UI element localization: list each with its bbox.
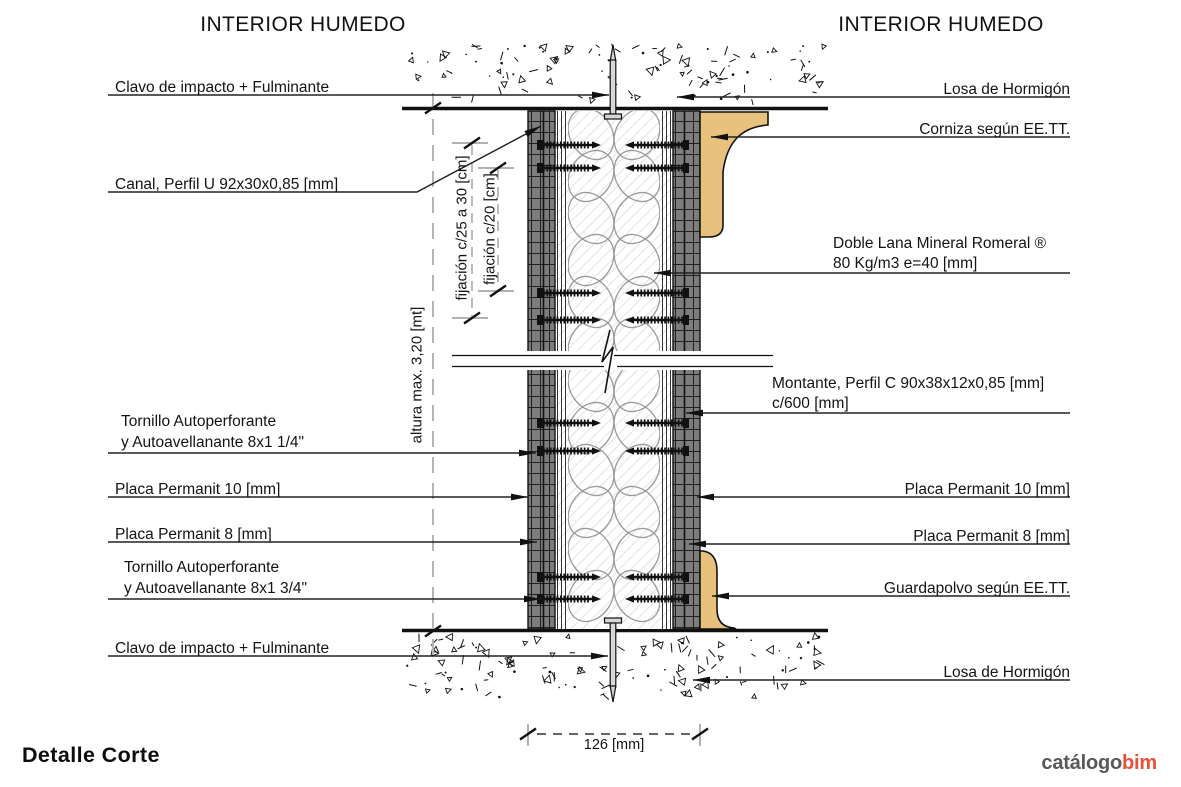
label-tornillo-2-line2: y Autoavellanante 8x1 3/4" [124, 578, 307, 599]
label-fijacion-outer: fijación c/25 a 30 [cm] [454, 155, 471, 300]
label-tornillo-1: Tornillo Autoperforante y Autoavellanant… [121, 411, 304, 453]
title-interior-left: INTERIOR HUMEDO [150, 13, 456, 37]
label-tornillo-1-line2: y Autoavellanante 8x1 1/4" [121, 432, 304, 453]
label-tornillo-2: Tornillo Autoperforante y Autoavellanant… [124, 557, 307, 599]
label-clavo-bottom: Clavo de impacto + Fulminante [115, 638, 329, 659]
detail-drawing-sheet: INTERIOR HUMEDO INTERIOR HUMEDO Clavo de… [0, 0, 1181, 787]
label-placa8-right: Placa Permanit 8 [mm] [913, 526, 1070, 547]
title-interior-right: INTERIOR HUMEDO [788, 13, 1094, 37]
label-placa10-left: Placa Permanit 10 [mm] [115, 479, 280, 500]
label-losa-bottom: Losa de Hormigón [943, 662, 1070, 683]
label-lana-line1: Doble Lana Mineral Romeral ® [833, 234, 1046, 254]
label-losa-top: Losa de Hormigón [943, 79, 1070, 100]
guardapolvo-profile [700, 551, 736, 629]
label-lana-line2: 80 Kg/m3 e=40 [mm] [833, 254, 1046, 274]
label-montante: Montante, Perfil C 90x38x12x0,85 [mm] c/… [772, 374, 1044, 413]
cornice-profile [700, 112, 768, 237]
logo-text-gray: catálogo [1041, 752, 1122, 774]
sheet-title: Detalle Corte [22, 743, 160, 768]
label-tornillo-2-line1: Tornillo Autoperforante [124, 557, 307, 578]
label-montante-line1: Montante, Perfil C 90x38x12x0,85 [mm] [772, 374, 1044, 394]
label-placa8-left: Placa Permanit 8 [mm] [115, 524, 272, 545]
label-corniza: Corniza según EE.TT. [919, 119, 1070, 140]
label-clavo-top: Clavo de impacto + Fulminante [115, 77, 329, 98]
label-guardapolvo: Guardapolvo según EE.TT. [884, 578, 1070, 599]
label-altura-max: altura max. 3,20 [mt] [409, 307, 426, 444]
catalogobim-logo: catálogobim [1041, 752, 1157, 775]
label-canal: Canal, Perfil U 92x30x0,85 [mm] [115, 174, 338, 195]
concrete-slab-top-texture [408, 43, 826, 105]
label-fijacion-inner: fijación c/20 [cm] [482, 173, 499, 285]
label-montante-line2: c/600 [mm] [772, 394, 1044, 414]
label-width-dimension: 126 [mm] [559, 737, 669, 753]
label-tornillo-1-line1: Tornillo Autoperforante [121, 411, 304, 432]
label-lana-mineral: Doble Lana Mineral Romeral ® 80 Kg/m3 e=… [833, 234, 1046, 273]
label-placa10-right: Placa Permanit 10 [mm] [905, 479, 1070, 500]
logo-text-accent: bim [1122, 752, 1157, 774]
